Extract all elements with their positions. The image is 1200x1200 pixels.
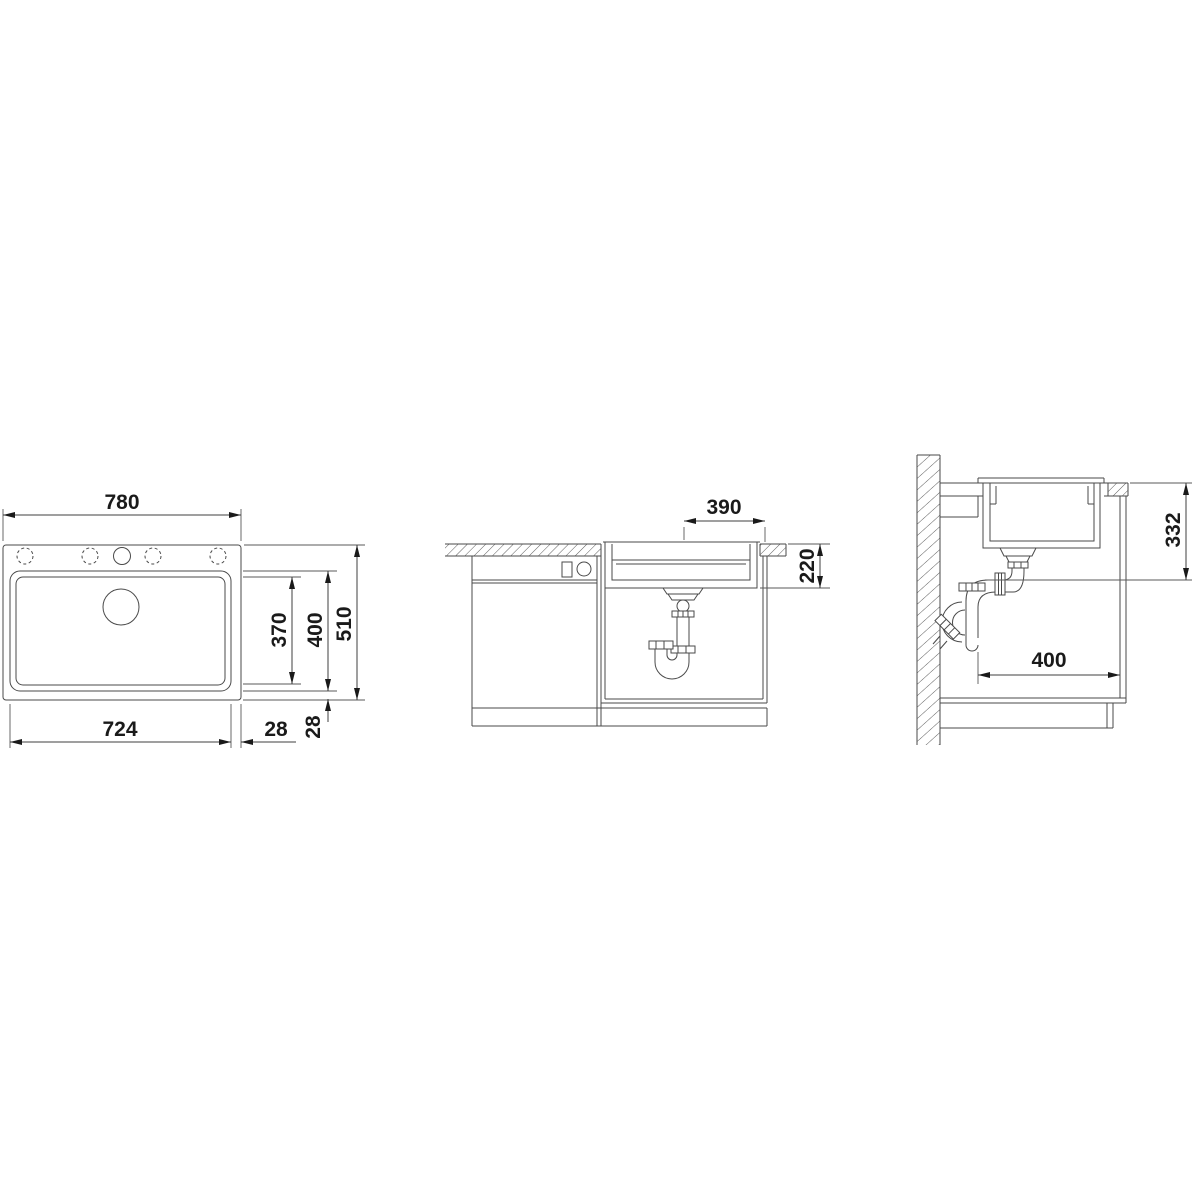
dim-label-332: 332 bbox=[1162, 512, 1185, 547]
dim-label-510: 510 bbox=[333, 606, 356, 641]
countertop-hatch bbox=[760, 544, 786, 556]
faucet-hole-optional-1 bbox=[17, 548, 33, 564]
sink-outer-outline bbox=[3, 545, 241, 700]
dim-edge-right: 28 bbox=[241, 704, 296, 748]
coupling-nut bbox=[995, 573, 1005, 595]
drain-flange bbox=[663, 588, 703, 594]
dim-label-370: 370 bbox=[268, 612, 291, 647]
wall-outlet-pipe bbox=[940, 641, 947, 649]
dim-label-390: 390 bbox=[706, 496, 741, 519]
front-section-view: 390 220 bbox=[445, 496, 830, 726]
dim-label-220: 220 bbox=[796, 548, 819, 583]
dim-bowl-width: 724 bbox=[10, 704, 231, 748]
countertop-hatch bbox=[445, 544, 601, 556]
bowl-outer-wall bbox=[605, 542, 757, 588]
dim-cabinet-inner-depth: 400 bbox=[978, 649, 1120, 684]
dim-edge-front: 28 bbox=[302, 699, 328, 739]
dim-overall-width: 780 bbox=[3, 491, 241, 541]
siphon-front bbox=[649, 588, 703, 679]
technical-drawing: 780 510 400 370 724 bbox=[0, 0, 1200, 1200]
wall bbox=[917, 455, 940, 745]
faucet-hole-optional-3 bbox=[145, 548, 161, 564]
plinth bbox=[472, 708, 767, 726]
dim-label-724: 724 bbox=[102, 718, 137, 741]
countertop-right bbox=[760, 544, 786, 556]
faucet-hole-optional-4 bbox=[210, 548, 226, 564]
trap-bottom-cap bbox=[966, 645, 978, 651]
control-display bbox=[562, 562, 572, 577]
coupling-nut bbox=[959, 583, 985, 591]
dim-label-400-side: 400 bbox=[1031, 649, 1066, 672]
plan-view: 780 510 400 370 724 bbox=[3, 491, 365, 748]
side-section-view: 332 400 bbox=[917, 455, 1192, 745]
coupling-nut bbox=[1008, 562, 1028, 568]
faucet-hole-main bbox=[114, 548, 131, 565]
drain-hole bbox=[103, 589, 139, 625]
sink-bowl-section bbox=[603, 542, 760, 588]
drain-flange bbox=[1006, 556, 1030, 562]
bowl-inner-outline bbox=[16, 577, 225, 685]
drain-flange bbox=[668, 594, 698, 600]
dishwasher-cabinet bbox=[472, 556, 597, 708]
dim-label-780: 780 bbox=[104, 491, 139, 514]
countertop-left bbox=[445, 544, 601, 556]
faucet-holes bbox=[17, 548, 226, 565]
dim-label-28-front: 28 bbox=[302, 715, 325, 739]
dim-bowl-inner-depth: 370 bbox=[243, 577, 301, 684]
coupling-nut bbox=[649, 641, 673, 649]
ball-joint bbox=[677, 600, 689, 612]
bowl-outer-wall bbox=[983, 483, 1100, 548]
dim-drain-to-edge: 390 bbox=[684, 496, 765, 542]
dim-label-28-right: 28 bbox=[264, 718, 288, 741]
countertop-cut-hatch bbox=[1108, 483, 1128, 496]
control-knob bbox=[577, 562, 591, 576]
faucet-hole-optional-2 bbox=[82, 548, 98, 564]
siphon-side bbox=[933, 548, 1036, 651]
dim-label-400: 400 bbox=[304, 612, 327, 647]
coupling-nut bbox=[671, 646, 695, 653]
wall-hatch bbox=[917, 455, 940, 745]
sink-bowl-side-section bbox=[978, 478, 1104, 548]
drain-flange bbox=[1000, 548, 1036, 556]
coupling-nut bbox=[672, 611, 694, 617]
